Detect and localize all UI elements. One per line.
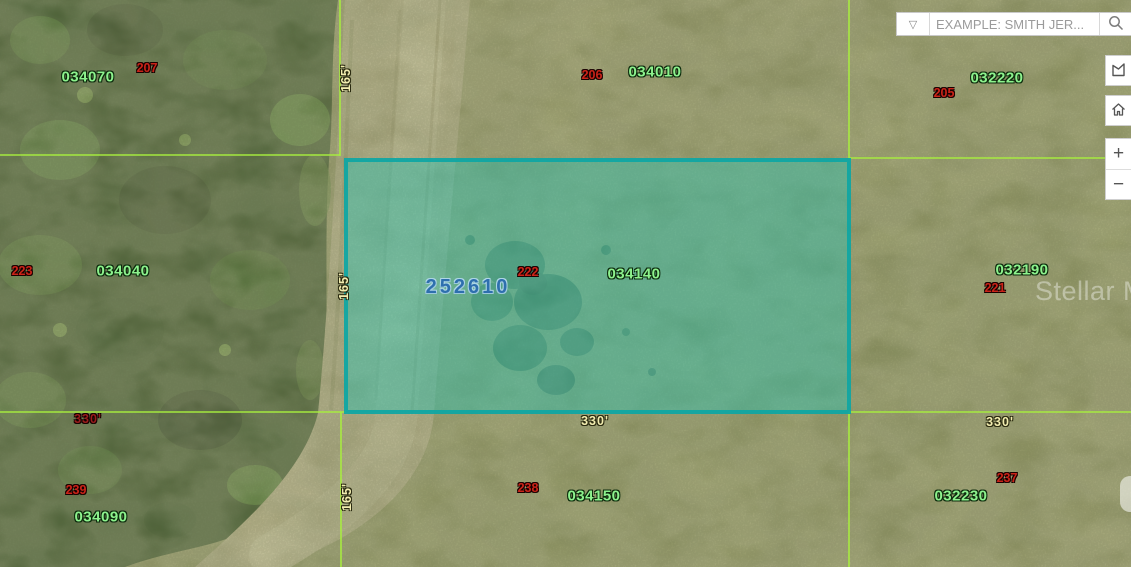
plus-icon: + [1113, 143, 1124, 164]
search-bar: ▽ [896, 12, 1131, 36]
parcel-number-label: 034070 [61, 70, 114, 85]
parcel-number-label: 032230 [934, 489, 987, 504]
dimension-label: 165' [340, 64, 353, 92]
polygon-icon [1110, 61, 1127, 81]
zoom-out-button[interactable]: − [1106, 170, 1131, 200]
parcel-number-label: 034040 [96, 264, 149, 279]
dimension-label: 165' [338, 272, 351, 300]
magnifier-icon [1108, 15, 1124, 34]
selected-parcel-highlight[interactable] [346, 160, 849, 412]
zoom-controls: + − [1105, 138, 1131, 200]
selected-parcel-id-label: 252610 [426, 277, 511, 297]
parcel-number-label: 034140 [607, 267, 660, 282]
search-input[interactable] [930, 13, 1099, 35]
lot-number-label: 239 [66, 484, 87, 497]
lot-number-label: 222 [518, 266, 539, 279]
watermark: Stellar MLS [1035, 276, 1131, 307]
lot-number-label: 207 [137, 62, 158, 75]
parcel-number-label: 032220 [970, 71, 1023, 86]
home-extent-button[interactable] [1105, 95, 1131, 126]
gis-map-canvas[interactable]: 034070 034010 032220 034040 034140 03219… [0, 0, 1131, 567]
search-dropdown-button[interactable]: ▽ [897, 13, 930, 35]
parcel-number-label: 034010 [628, 65, 681, 80]
search-button[interactable] [1099, 13, 1131, 35]
dimension-label: 165' [341, 483, 354, 511]
lot-number-label: 237 [997, 472, 1018, 485]
minus-icon: − [1113, 174, 1124, 195]
watermark-shape [1120, 476, 1131, 512]
lot-number-label: 223 [12, 265, 33, 278]
lot-number-label: 221 [985, 282, 1006, 295]
triangle-down-icon: ▽ [909, 18, 917, 31]
dimension-label: 330' [986, 416, 1014, 429]
dimension-label: 330' [581, 415, 609, 428]
draw-extent-button[interactable] [1105, 55, 1131, 86]
zoom-in-button[interactable]: + [1106, 139, 1131, 170]
parcel-number-label: 034090 [74, 510, 127, 525]
parcel-number-label: 034150 [567, 489, 620, 504]
home-icon [1110, 101, 1127, 121]
aerial-imagery [0, 0, 1131, 567]
lot-number-label: 205 [934, 87, 955, 100]
lot-number-label: 238 [518, 482, 539, 495]
lot-number-label: 206 [582, 69, 603, 82]
dimension-label: 330' [74, 413, 102, 426]
